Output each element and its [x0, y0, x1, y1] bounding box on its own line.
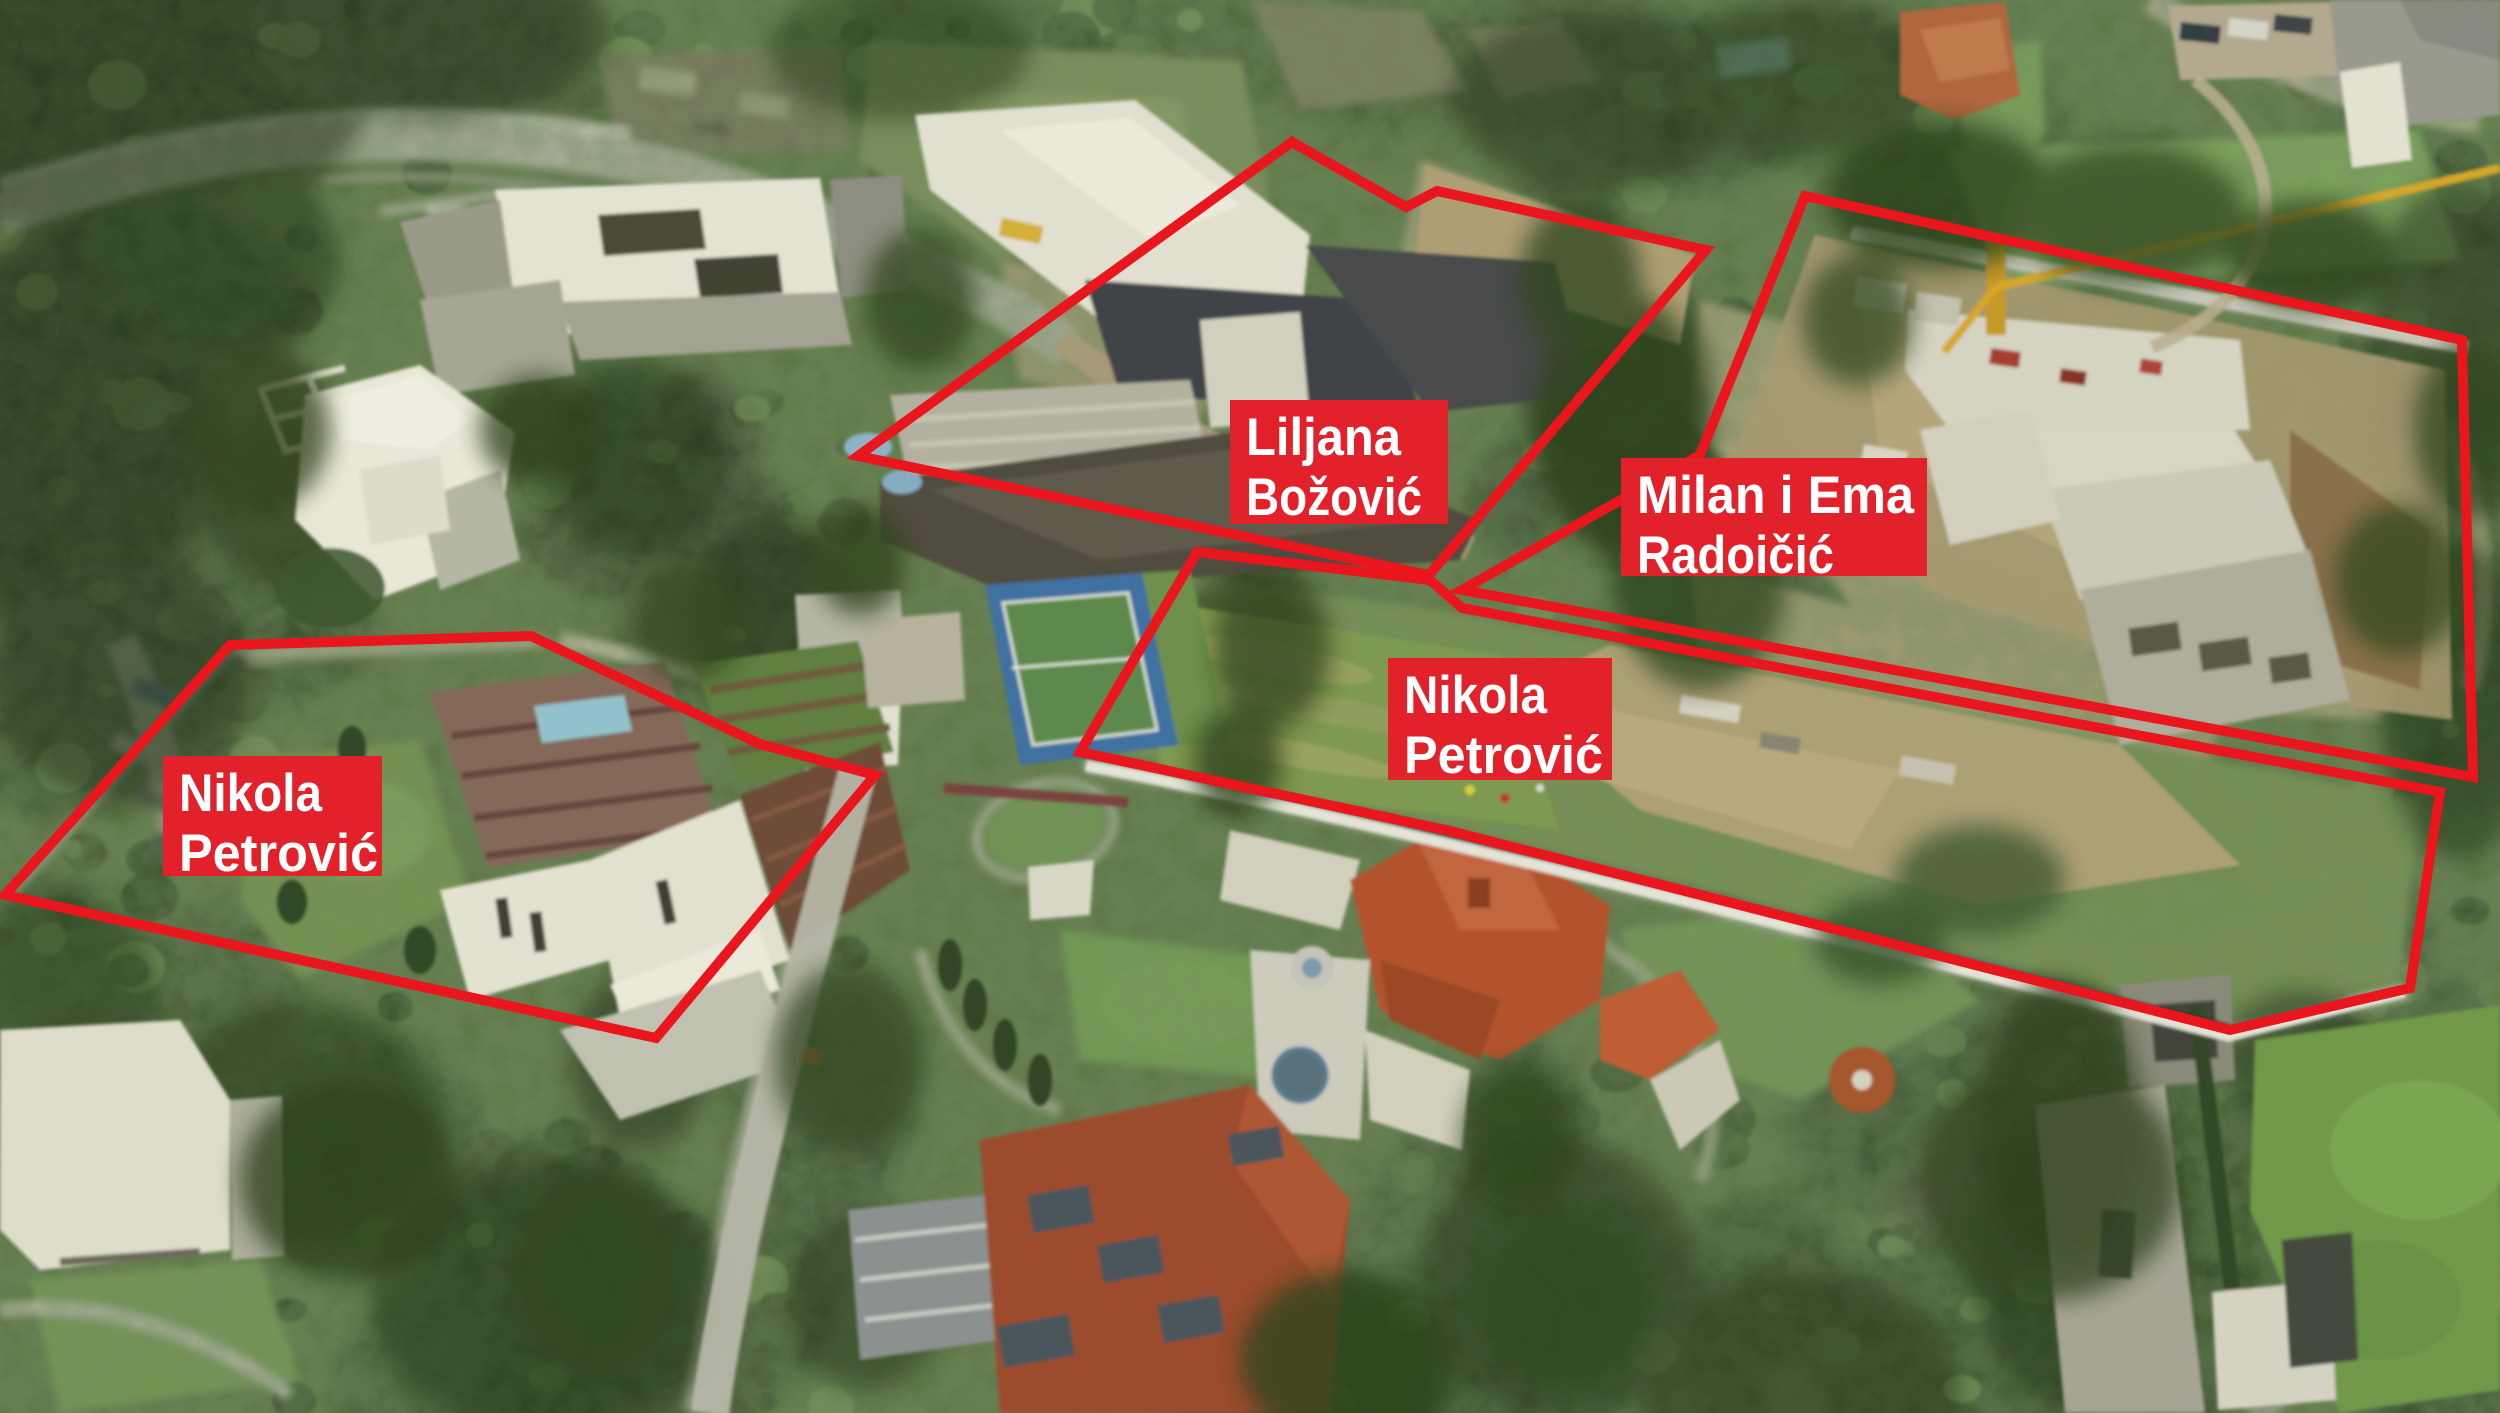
svg-text:Liljana: Liljana: [1246, 408, 1401, 467]
svg-text:Nikola: Nikola: [179, 764, 322, 823]
svg-text:Petrović: Petrović: [179, 824, 378, 883]
svg-text:Božović: Božović: [1246, 468, 1422, 527]
svg-text:Radoičić: Radoičić: [1637, 526, 1834, 585]
svg-text:Nikola: Nikola: [1404, 666, 1547, 725]
svg-text:Milan i Ema: Milan i Ema: [1637, 466, 1914, 525]
svg-text:Petrović: Petrović: [1404, 726, 1603, 785]
